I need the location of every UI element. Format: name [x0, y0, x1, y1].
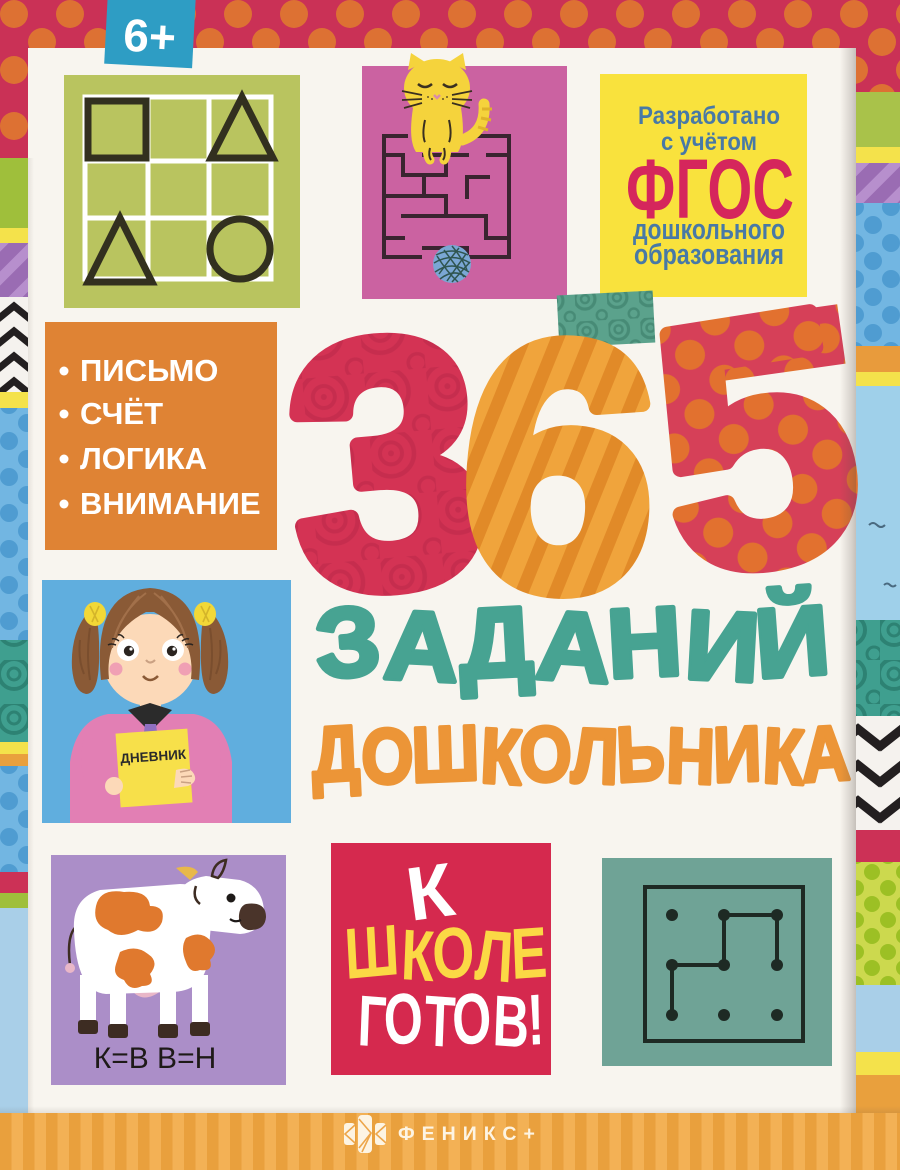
- svg-text:Разработано: Разработано: [638, 102, 780, 130]
- svg-text:СЧЁТ: СЧЁТ: [80, 396, 163, 431]
- svg-text:6+: 6+: [122, 9, 177, 64]
- svg-text:ЛОГИКА: ЛОГИКА: [80, 441, 207, 476]
- svg-text:ЗАДАНИЙ: ЗАДАНИЙ: [312, 584, 833, 704]
- svg-text:ПИСЬМО: ПИСЬМО: [80, 353, 218, 388]
- svg-text:ФЕНИКС+: ФЕНИКС+: [398, 1123, 542, 1145]
- svg-text:К=В В=Н: К=В В=Н: [94, 1042, 217, 1075]
- svg-text:ДОШКОЛЬНИКА: ДОШКОЛЬНИКА: [309, 709, 852, 802]
- svg-text:ВНИМАНИЕ: ВНИМАНИЕ: [80, 486, 261, 521]
